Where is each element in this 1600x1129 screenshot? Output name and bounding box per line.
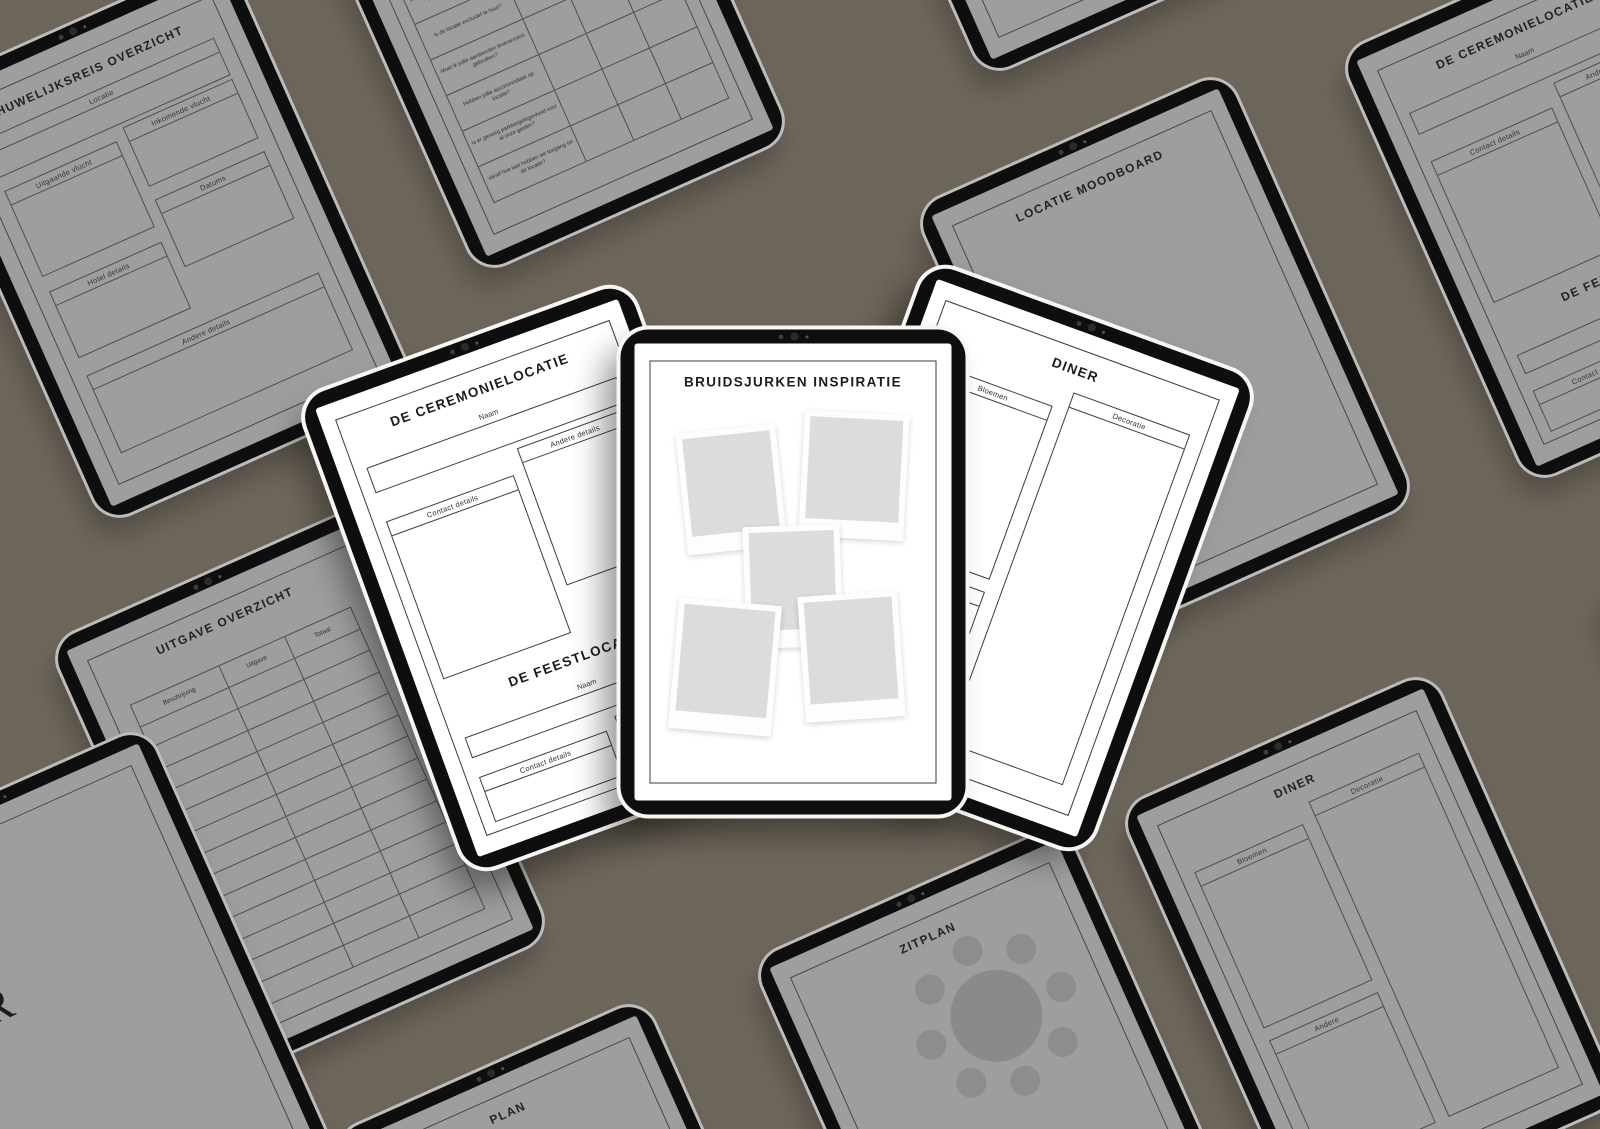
- photo-placeholder: [797, 590, 905, 723]
- tablet-corner-right: [1594, 454, 1600, 1022]
- tablet-screen: [811, 0, 1278, 60]
- planner-page: DE CEREMONIELOCATIE Naam Andere details …: [1377, 0, 1600, 445]
- tablet-screen: PLAN: [349, 1015, 816, 1129]
- planner-page: BRUIDSJURKEN INSPIRATIE: [650, 361, 937, 784]
- planner-page: Hoeveel gasten kunnen jullie ontvangen? …: [327, 0, 753, 235]
- page-title-fragment: PLAN: [376, 1049, 639, 1129]
- mockup-scene: HUWELIJKSREIS OVERZICHT Locatie Uitgaand…: [0, 0, 1600, 1129]
- tablet-corner-top: [794, 0, 1296, 77]
- tablet-body: [794, 0, 1296, 77]
- tablet-ceremonielocatie-gray: DE CEREMONIELOCATIE Naam Andere details …: [1339, 0, 1600, 484]
- photo-placeholder: [668, 597, 782, 736]
- cover-title-fragment: T ER: [0, 920, 25, 1053]
- field-label: Bloemen: [1196, 826, 1308, 887]
- tablet-plan-partial: PLAN: [332, 998, 834, 1129]
- tablet-screen: BRUIDSJURKEN INSPIRATIE: [635, 344, 952, 801]
- field-label: Contact details: [387, 477, 518, 537]
- tablet-screen: Hoeveel gasten kunnen jullie ontvangen? …: [306, 0, 773, 257]
- tablet-diner-gray: DINER Bloemen Andere Decoratie: [1119, 671, 1600, 1129]
- field-contact-details: Contact details: [1431, 108, 1600, 304]
- camera-icon: [778, 333, 808, 341]
- planner-page: DINER Bloemen Andere Decoratie: [1157, 710, 1583, 1129]
- cover-line: ER: [0, 973, 25, 1052]
- photo-placeholder: [798, 409, 910, 541]
- tablet-screen: DINER Bloemen Andere Decoratie: [1136, 688, 1600, 1129]
- planner-page: ZITPLAN: [790, 862, 1216, 1129]
- tablet-body: [1594, 454, 1600, 1022]
- tablet-locatie-vragen: Hoeveel gasten kunnen jullie ontvangen? …: [289, 0, 791, 274]
- tablet-body: DINER Bloemen Andere Decoratie: [1119, 671, 1600, 1129]
- planner-page: PLAN: [370, 1037, 796, 1129]
- tablet-bruidsjurken: BRUIDSJURKEN INSPIRATIE: [621, 330, 966, 815]
- tablet-body: Hoeveel gasten kunnen jullie ontvangen? …: [289, 0, 791, 274]
- page-title: BRUIDSJURKEN INSPIRATIE: [651, 374, 936, 389]
- page-title: LOCATIE MOODBOARD: [958, 122, 1221, 249]
- questions-table: Hoeveel gasten kunnen jullie ontvangen? …: [382, 0, 729, 203]
- tablet-body: PLAN: [332, 998, 834, 1129]
- tablet-screen: DE CEREMONIELOCATIE Naam Andere details …: [1356, 0, 1600, 467]
- tablet-body: DE CEREMONIELOCATIE Naam Andere details …: [1339, 0, 1600, 484]
- tablet-body: BRUIDSJURKEN INSPIRATIE: [621, 330, 966, 815]
